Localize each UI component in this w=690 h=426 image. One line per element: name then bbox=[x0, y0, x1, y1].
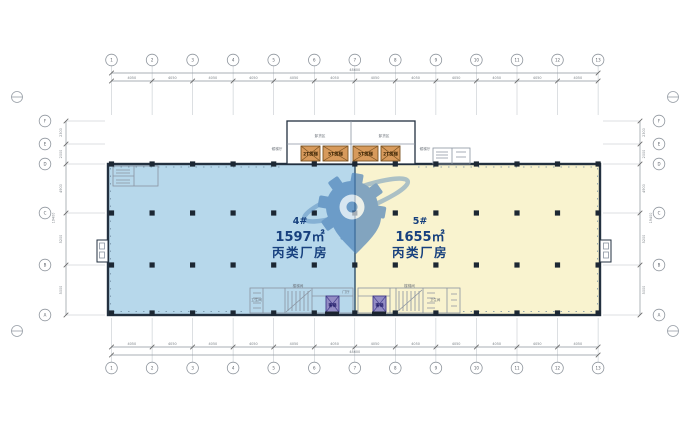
door-mark-left bbox=[325, 312, 339, 317]
grid-bubble-label: D bbox=[43, 162, 46, 167]
grid-bubble-label: 12 bbox=[555, 366, 561, 371]
dimension-value: 2300 bbox=[642, 128, 646, 137]
core-room-label-left: 卸货区 bbox=[315, 133, 326, 138]
grid-bubble-label: 5 bbox=[272, 366, 275, 371]
right-entry-stair bbox=[600, 240, 611, 262]
lobby-label-left: 候梯厅 bbox=[272, 146, 283, 151]
grid-bubble-label: 5 bbox=[272, 58, 275, 63]
grid-bubble-label: D bbox=[657, 162, 660, 167]
zone-4-number: 4# bbox=[293, 216, 308, 227]
grid-bubble-label: 8 bbox=[394, 366, 397, 371]
passenger-elevator-1-label: 客梯 bbox=[328, 302, 337, 308]
central-core: 卸货区 卸货区 候梯厅 候梯厅 2T货梯 5T货梯 5T货梯 2T货梯 bbox=[272, 121, 431, 164]
grid-bubble-label: 13 bbox=[596, 366, 602, 371]
left-entry-stair bbox=[97, 240, 108, 262]
room-label-stair-right: 楼梯间 bbox=[404, 283, 415, 288]
dimension-value: 4050 bbox=[249, 342, 258, 346]
freight-elevator-2: 5T货梯 bbox=[323, 146, 348, 161]
dimension-value: 4050 bbox=[127, 342, 136, 346]
grid-bubble-label: 7 bbox=[354, 366, 357, 371]
column-marker bbox=[555, 262, 560, 267]
column-marker bbox=[109, 262, 114, 267]
column-marker bbox=[231, 262, 236, 267]
dimension-value: 4050 bbox=[249, 76, 258, 80]
door-mark-right bbox=[372, 312, 386, 317]
zone-5-number: 5# bbox=[413, 216, 428, 227]
column-marker bbox=[596, 262, 601, 267]
column-marker bbox=[312, 161, 317, 166]
dimension-value: 4050 bbox=[452, 76, 461, 80]
column-marker bbox=[474, 262, 479, 267]
dimension-value: 2000 bbox=[59, 150, 63, 159]
dimension-value: 4900 bbox=[642, 184, 646, 193]
dimension-value: 4050 bbox=[411, 76, 420, 80]
column-marker bbox=[271, 310, 276, 315]
dimension-value: 5200 bbox=[642, 235, 646, 244]
freight-elevator-4: 2T货梯 bbox=[381, 146, 400, 161]
column-marker bbox=[514, 210, 519, 215]
dimension-value: 4050 bbox=[168, 342, 177, 346]
column-marker bbox=[433, 262, 438, 267]
column-marker bbox=[352, 262, 357, 267]
grid-bubble-label: B bbox=[658, 263, 661, 268]
dimension-value: 4050 bbox=[533, 342, 542, 346]
grid-bubble-label: 12 bbox=[555, 58, 561, 63]
column-marker bbox=[596, 310, 601, 315]
dimension-value: 4050 bbox=[168, 76, 177, 80]
column-marker bbox=[514, 262, 519, 267]
column-marker bbox=[555, 310, 560, 315]
column-marker bbox=[555, 210, 560, 215]
zone-5-area: 1655㎡ bbox=[395, 229, 444, 245]
column-marker bbox=[596, 210, 601, 215]
column-marker bbox=[393, 161, 398, 166]
column-marker bbox=[555, 161, 560, 166]
grid-bubble-label: 11 bbox=[514, 58, 520, 63]
dimension-value: 4900 bbox=[59, 184, 63, 193]
grid-bubble-label: 13 bbox=[596, 58, 602, 63]
column-marker bbox=[474, 161, 479, 166]
dimension-value: 2300 bbox=[59, 128, 63, 137]
zone-4-type: 丙类厂房 bbox=[272, 245, 328, 260]
grid-bubble-label: A bbox=[658, 313, 661, 318]
column-marker bbox=[190, 262, 195, 267]
top-right-room bbox=[433, 148, 470, 164]
zone-4-area: 1597㎡ bbox=[275, 229, 324, 245]
grid-bubble-label: 6 bbox=[313, 58, 316, 63]
column-marker bbox=[433, 161, 438, 166]
column-marker bbox=[474, 310, 479, 315]
grid-bubble-label: C bbox=[44, 211, 47, 216]
dimension-value: 19400 bbox=[52, 213, 56, 224]
column-marker bbox=[352, 310, 357, 315]
dimension-value: 4050 bbox=[290, 342, 299, 346]
grid-bubble-label: C bbox=[658, 211, 661, 216]
dimension-value: 5200 bbox=[59, 235, 63, 244]
zone-5-floor-area bbox=[355, 164, 600, 315]
zone-5-type: 丙类厂房 bbox=[392, 245, 448, 260]
column-marker bbox=[190, 210, 195, 215]
core-room-label-right: 卸货区 bbox=[379, 133, 390, 138]
column-marker bbox=[109, 161, 114, 166]
dimension-value: 4050 bbox=[127, 76, 136, 80]
column-marker bbox=[109, 210, 114, 215]
floorplan-canvas: 4050405040504050405040504050405040504050… bbox=[0, 0, 690, 426]
column-marker bbox=[393, 262, 398, 267]
room-label-hall: 门厅 bbox=[342, 289, 350, 294]
dimension-value: 4050 bbox=[411, 342, 420, 346]
room-label-wc-left: 卫生间 bbox=[251, 297, 262, 302]
dimension-value: 4050 bbox=[290, 76, 299, 80]
dimension-value: 4050 bbox=[371, 76, 380, 80]
grid-bubble-label: 10 bbox=[474, 366, 480, 371]
grid-bubble-label: A bbox=[44, 313, 47, 318]
room-label-stair-left: 楼梯间 bbox=[293, 283, 304, 288]
dimension-value: 48600 bbox=[349, 68, 360, 72]
grid-bubble-label: B bbox=[44, 263, 47, 268]
column-marker bbox=[433, 210, 438, 215]
floorplan-drawing: 4050405040504050405040504050405040504050… bbox=[0, 0, 690, 426]
grid-bubble-label: 11 bbox=[514, 366, 520, 371]
grid-bubble-label: 9 bbox=[435, 58, 438, 63]
dimension-value: 4050 bbox=[492, 76, 501, 80]
passenger-elevator-2: 客梯 bbox=[373, 296, 386, 312]
column-marker bbox=[312, 262, 317, 267]
dimension-value: 4050 bbox=[209, 76, 218, 80]
grid-bubble-label: 9 bbox=[435, 366, 438, 371]
freight-elevator-2-label: 5T货梯 bbox=[328, 151, 343, 158]
column-marker bbox=[231, 210, 236, 215]
column-marker bbox=[150, 161, 155, 166]
column-marker bbox=[271, 161, 276, 166]
grid-bubble-label: 6 bbox=[313, 366, 316, 371]
dimension-value: 2000 bbox=[642, 150, 646, 159]
column-marker bbox=[596, 161, 601, 166]
column-marker bbox=[514, 310, 519, 315]
dimension-value: 48600 bbox=[349, 350, 360, 354]
dimension-value: 4050 bbox=[330, 76, 339, 80]
grid-bubble-label: 8 bbox=[394, 58, 397, 63]
column-marker bbox=[352, 161, 357, 166]
dimension-value: 5000 bbox=[642, 286, 646, 295]
dimension-value: 4050 bbox=[452, 342, 461, 346]
column-marker bbox=[190, 161, 195, 166]
room-label-wc-right: 卫生间 bbox=[430, 297, 441, 302]
dimension-value: 4050 bbox=[533, 76, 542, 80]
dimension-value: 4050 bbox=[492, 342, 501, 346]
column-marker bbox=[312, 310, 317, 315]
dimension-value: 4050 bbox=[209, 342, 218, 346]
freight-elevator-1-label: 2T货梯 bbox=[303, 151, 318, 158]
grid-bubble-label: 7 bbox=[354, 58, 357, 63]
freight-elevator-3-label: 5T货梯 bbox=[358, 151, 373, 158]
freight-elevator-3: 5T货梯 bbox=[353, 146, 378, 161]
column-marker bbox=[514, 161, 519, 166]
passenger-elevator-2-label: 客梯 bbox=[375, 302, 384, 308]
dimension-value: 4050 bbox=[573, 76, 582, 80]
grid-bubble-label: 1 bbox=[110, 58, 113, 63]
column-marker bbox=[474, 210, 479, 215]
dimension-value: 4050 bbox=[371, 342, 380, 346]
grid-bubble-label: 1 bbox=[110, 366, 113, 371]
freight-elevator-4-label: 2T货梯 bbox=[383, 151, 398, 158]
column-marker bbox=[231, 310, 236, 315]
column-marker bbox=[150, 210, 155, 215]
column-marker bbox=[109, 310, 114, 315]
grid-bubble-label: 10 bbox=[474, 58, 480, 63]
column-marker bbox=[231, 161, 236, 166]
freight-elevator-1: 2T货梯 bbox=[301, 146, 320, 161]
column-marker bbox=[150, 310, 155, 315]
column-marker bbox=[393, 310, 398, 315]
dimension-value: 5000 bbox=[59, 286, 63, 295]
column-marker bbox=[190, 310, 195, 315]
column-marker bbox=[393, 210, 398, 215]
dimension-value: 4050 bbox=[573, 342, 582, 346]
column-marker bbox=[433, 310, 438, 315]
column-marker bbox=[150, 262, 155, 267]
passenger-elevator-1: 客梯 bbox=[326, 296, 339, 312]
lobby-label-right: 候梯厅 bbox=[420, 146, 431, 151]
dimension-value: 4050 bbox=[330, 342, 339, 346]
dimension-value: 19400 bbox=[649, 213, 653, 224]
column-marker bbox=[271, 210, 276, 215]
column-marker bbox=[271, 262, 276, 267]
